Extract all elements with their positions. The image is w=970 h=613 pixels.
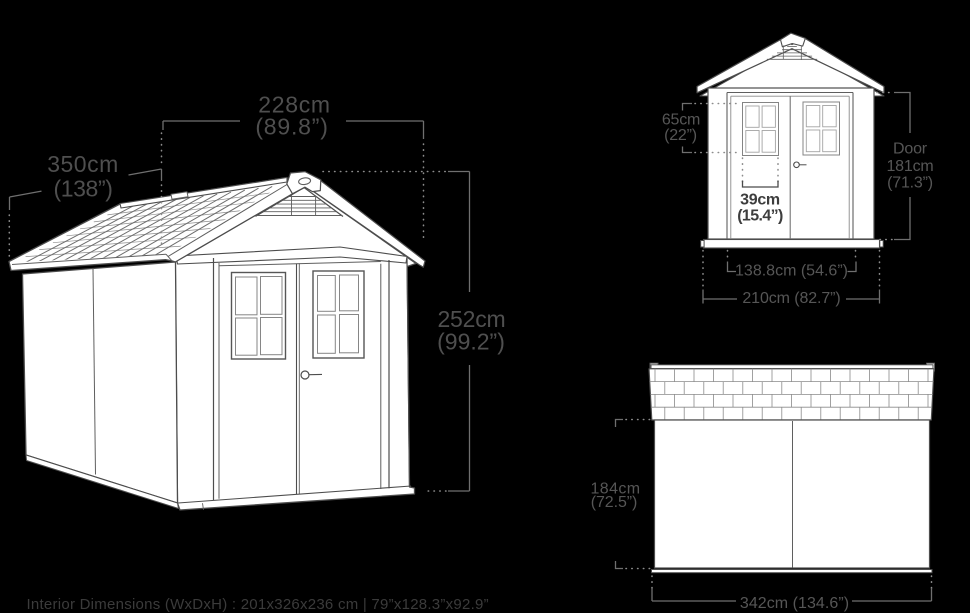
svg-text:(89.8”): (89.8”) xyxy=(255,114,328,140)
svg-text:350cm: 350cm xyxy=(47,151,119,177)
svg-text:(22”): (22”) xyxy=(664,127,697,144)
svg-text:138.8cm (54.6”): 138.8cm (54.6”) xyxy=(735,263,848,280)
svg-text:(71.3”): (71.3”) xyxy=(887,175,933,192)
svg-text:(99.2”): (99.2”) xyxy=(437,329,505,355)
svg-text:(138”): (138”) xyxy=(54,176,113,202)
svg-text:(72.5”): (72.5”) xyxy=(591,494,637,511)
svg-text:39cm: 39cm xyxy=(740,192,780,209)
svg-text:Door: Door xyxy=(893,141,928,158)
svg-text:(15.4”): (15.4”) xyxy=(737,208,783,225)
svg-text:181cm: 181cm xyxy=(886,158,933,175)
svg-text:210cm (82.7”): 210cm (82.7”) xyxy=(742,290,840,307)
svg-text:65cm: 65cm xyxy=(662,112,700,129)
svg-text:342cm (134.6”): 342cm (134.6”) xyxy=(740,595,849,612)
svg-text:Interior Dimensions (WxDxH) :: Interior Dimensions (WxDxH) : 201x326x23… xyxy=(27,596,489,613)
